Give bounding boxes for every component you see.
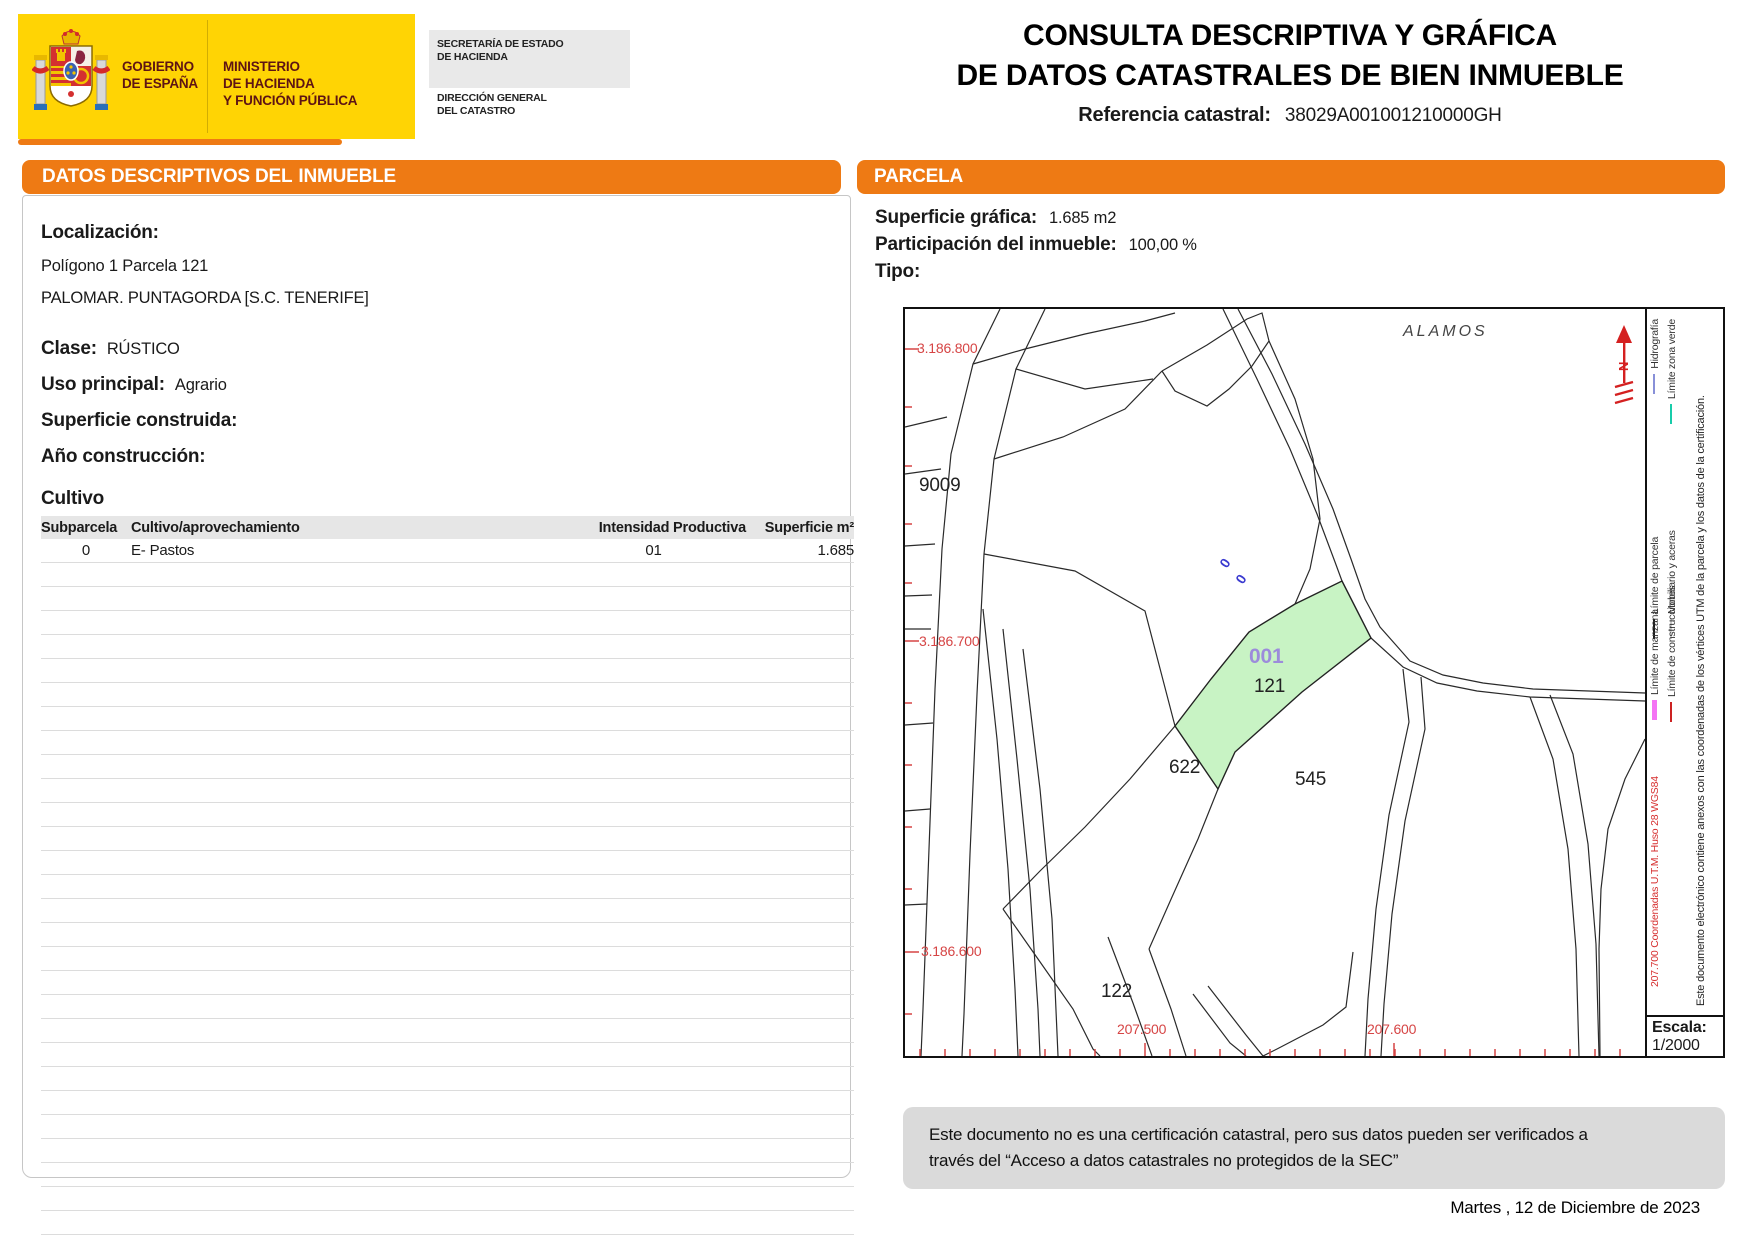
escala-box: Escala: 1/2000 bbox=[1645, 1015, 1723, 1056]
cultivo-cell bbox=[131, 1019, 561, 1043]
legend-item: Límite de manzana bbox=[1649, 609, 1661, 720]
cultivo-cell bbox=[561, 611, 746, 635]
cultivo-column-1: Subparcela bbox=[41, 516, 131, 539]
cultivo-cell bbox=[561, 1019, 746, 1043]
document-date: Martes , 12 de Diciembre de 2023 bbox=[1100, 1198, 1700, 1218]
cultivo-cell bbox=[561, 1067, 746, 1091]
cultivo-cell bbox=[746, 1067, 854, 1091]
cultivo-cell bbox=[561, 1211, 746, 1235]
cultivo-cell bbox=[746, 1163, 854, 1187]
cultivo-cell bbox=[41, 1187, 131, 1211]
section-header-emphasis: INMUEBLE bbox=[298, 166, 396, 187]
cultivo-cell bbox=[41, 1211, 131, 1235]
cultivo-empty-row bbox=[41, 635, 854, 659]
legend-item-label: Límite de manzana bbox=[1649, 609, 1661, 695]
disclaimer-box: Este documento no es una certificación c… bbox=[903, 1107, 1725, 1189]
datos-descriptivos-panel: Localización: Polígono 1 Parcela 121 PAL… bbox=[22, 195, 851, 1178]
cultivo-cell bbox=[131, 1139, 561, 1163]
cultivo-cell bbox=[746, 1211, 854, 1235]
cultivo-cell bbox=[131, 1067, 561, 1091]
cultivo-cell bbox=[746, 899, 854, 923]
cultivo-empty-row bbox=[41, 899, 854, 923]
section-header-prefix: DATOS DESCRIPTIVOS DEL bbox=[42, 166, 292, 187]
clase-label: Clase: bbox=[41, 338, 97, 359]
parcel-number-label: 121 bbox=[1254, 676, 1285, 698]
cultivo-cell bbox=[41, 827, 131, 851]
participacion-label: Participación del inmueble: bbox=[875, 234, 1117, 255]
gobierno-line2: DE ESPAÑA bbox=[122, 75, 198, 92]
cultivo-table: SubparcelaCultivo/aprovechamientoIntensi… bbox=[41, 516, 854, 1235]
cultivo-cell: 0 bbox=[41, 539, 131, 563]
cultivo-cell bbox=[41, 779, 131, 803]
referencia-value: 38029A001001210000GH bbox=[1285, 105, 1502, 126]
cultivo-cell bbox=[746, 1139, 854, 1163]
cultivo-cell bbox=[41, 563, 131, 587]
title-line1: CONSULTA DESCRIPTIVA Y GRÁFICA bbox=[870, 16, 1710, 56]
cultivo-cell bbox=[746, 1187, 854, 1211]
legend-separator bbox=[1645, 309, 1647, 1056]
cadastral-document-page: GOBIERNO DE ESPAÑA MINISTERIO DE HACIEND… bbox=[0, 0, 1757, 1241]
cultivo-cell bbox=[561, 755, 746, 779]
cultivo-cell bbox=[131, 1187, 561, 1211]
cultivo-cell bbox=[131, 1091, 561, 1115]
cultivo-cell bbox=[131, 1211, 561, 1235]
localizacion-line1: Polígono 1 Parcela 121 bbox=[41, 257, 842, 276]
localizacion-label: Localización: bbox=[41, 222, 842, 244]
cultivo-cell bbox=[131, 923, 561, 947]
gobierno-line1: GOBIERNO bbox=[122, 58, 198, 75]
ministerio-line3: Y FUNCIÓN PÚBLICA bbox=[223, 92, 357, 109]
cultivo-cell bbox=[746, 587, 854, 611]
legend-swatch-icon bbox=[1670, 404, 1672, 424]
orange-divider-stub bbox=[18, 139, 342, 145]
document-title: CONSULTA DESCRIPTIVA Y GRÁFICA DE DATOS … bbox=[870, 16, 1710, 127]
superficie-grafica-label: Superficie gráfica: bbox=[875, 207, 1037, 228]
cultivo-cell bbox=[131, 851, 561, 875]
cultivo-cell bbox=[41, 1139, 131, 1163]
legend-item: Límite zona verde bbox=[1666, 319, 1679, 424]
cultivo-cell bbox=[131, 611, 561, 635]
participacion-value: 100,00 % bbox=[1129, 236, 1197, 254]
cultivo-empty-row bbox=[41, 1211, 854, 1235]
cultivo-cell bbox=[131, 971, 561, 995]
cultivo-cell bbox=[746, 659, 854, 683]
cultivo-cell bbox=[746, 1091, 854, 1115]
ministerio-line1: MINISTERIO bbox=[223, 58, 357, 75]
cultivo-cell bbox=[131, 947, 561, 971]
gobierno-title: GOBIERNO DE ESPAÑA bbox=[122, 58, 198, 92]
north-label: N bbox=[1616, 362, 1631, 371]
cultivo-cell bbox=[41, 1019, 131, 1043]
disclaimer-line2: través del “Acceso a datos catastrales n… bbox=[929, 1148, 1699, 1174]
uso-principal-value: Agrario bbox=[175, 376, 227, 394]
cultivo-empty-row bbox=[41, 1187, 854, 1211]
clase-field: Clase:RÚSTICO bbox=[41, 338, 842, 360]
cultivo-cell bbox=[561, 1163, 746, 1187]
legend-line: Límite de construcciones bbox=[1666, 577, 1679, 722]
cultivo-empty-row bbox=[41, 659, 854, 683]
cultivo-cell bbox=[746, 995, 854, 1019]
cultivo-cell bbox=[41, 707, 131, 731]
utm-coordinate-label: 207.500 bbox=[1117, 1021, 1166, 1037]
cultivo-cell bbox=[561, 803, 746, 827]
uso-principal-label: Uso principal: bbox=[41, 374, 165, 395]
cultivo-cell: 01 bbox=[561, 539, 746, 563]
cultivo-cell bbox=[561, 683, 746, 707]
cultivo-cell bbox=[131, 779, 561, 803]
legend-item-label: Límite de construcciones bbox=[1666, 586, 1678, 697]
cultivo-cell bbox=[746, 563, 854, 587]
cultivo-cell bbox=[131, 1115, 561, 1139]
direccion-general-catastro: DIRECCIÓN GENERAL DEL CATASTRO bbox=[437, 92, 547, 118]
utm-left-ticks bbox=[905, 349, 919, 1014]
cultivo-cell bbox=[561, 563, 746, 587]
cultivo-cell bbox=[746, 851, 854, 875]
cultivo-empty-row bbox=[41, 1163, 854, 1187]
cultivo-cell bbox=[561, 635, 746, 659]
referencia-catastral: Referencia catastral:38029A001001210000G… bbox=[870, 104, 1710, 127]
cultivo-cell bbox=[746, 611, 854, 635]
cultivo-cell bbox=[561, 1091, 746, 1115]
cultivo-empty-row bbox=[41, 707, 854, 731]
cultivo-cell bbox=[41, 995, 131, 1019]
cultivo-cell bbox=[131, 587, 561, 611]
cultivo-empty-row bbox=[41, 1067, 854, 1091]
spain-coat-of-arms-icon bbox=[32, 22, 110, 132]
legend-swatch-icon bbox=[1670, 702, 1672, 722]
cultivo-empty-row bbox=[41, 1091, 854, 1115]
cultivo-cell bbox=[746, 731, 854, 755]
cultivo-cell bbox=[561, 731, 746, 755]
section-header-datos-descriptivos: DATOS DESCRIPTIVOS DELINMUEBLE bbox=[22, 160, 841, 194]
cultivo-cell bbox=[746, 803, 854, 827]
cultivo-empty-row bbox=[41, 947, 854, 971]
cultivo-cell bbox=[561, 659, 746, 683]
cultivo-empty-row bbox=[41, 1139, 854, 1163]
superficie-grafica-value: 1.685 m2 bbox=[1049, 209, 1116, 227]
cultivo-cell bbox=[41, 971, 131, 995]
legend-swatch-icon bbox=[1653, 374, 1655, 394]
cultivo-column-4: Superficie m² bbox=[746, 516, 854, 539]
cultivo-cell bbox=[746, 683, 854, 707]
cultivo-cell bbox=[561, 947, 746, 971]
cultivo-cell bbox=[561, 587, 746, 611]
direccion-line2: DEL CATASTRO bbox=[437, 105, 547, 118]
parcel-number-label: 622 bbox=[1169, 757, 1200, 779]
cultivo-cell bbox=[561, 851, 746, 875]
cultivo-cell bbox=[41, 875, 131, 899]
cultivo-cell bbox=[41, 1043, 131, 1067]
cultivo-cell bbox=[561, 779, 746, 803]
utm-coordinates-note: 207.700 Coordenadas U.T.M. Huso 28 WGS84 bbox=[1649, 776, 1662, 987]
cultivo-cell bbox=[41, 1115, 131, 1139]
cultivo-cell bbox=[41, 1163, 131, 1187]
north-arrow-icon: N bbox=[1615, 325, 1633, 403]
cultivo-table-header-row: SubparcelaCultivo/aprovechamientoIntensi… bbox=[41, 516, 854, 539]
cultivo-cell: E- Pastos bbox=[131, 539, 561, 563]
cultivo-cell bbox=[41, 659, 131, 683]
cultivo-empty-row bbox=[41, 731, 854, 755]
cultivo-cell bbox=[41, 1067, 131, 1091]
cultivo-cell bbox=[746, 779, 854, 803]
secretaria-line2: DE HACIENDA bbox=[437, 51, 630, 64]
cultivo-cell bbox=[41, 851, 131, 875]
localizacion-line2: PALOMAR. PUNTAGORDA [S.C. TENERIFE] bbox=[41, 289, 842, 308]
cultivo-cell bbox=[41, 923, 131, 947]
cultivo-cell bbox=[746, 947, 854, 971]
cultivo-cell bbox=[131, 635, 561, 659]
superficie-construida-label: Superficie construida: bbox=[41, 410, 237, 431]
cultivo-cell bbox=[561, 1043, 746, 1067]
superficie-construida-field: Superficie construida: bbox=[41, 410, 842, 432]
legend-line: Límite de manzana bbox=[1649, 600, 1662, 720]
cultivo-cell bbox=[131, 707, 561, 731]
cultivo-cell bbox=[746, 635, 854, 659]
cultivo-empty-row bbox=[41, 1115, 854, 1139]
parcel-number-label: 545 bbox=[1295, 769, 1326, 791]
cultivo-cell bbox=[746, 827, 854, 851]
utm-bottom-ticks bbox=[920, 1043, 1620, 1056]
gobierno-logo-block: GOBIERNO DE ESPAÑA MINISTERIO DE HACIEND… bbox=[18, 14, 415, 139]
cultivo-cell bbox=[131, 563, 561, 587]
cultivo-cell bbox=[746, 971, 854, 995]
cultivo-cell bbox=[746, 1115, 854, 1139]
cultivo-cell bbox=[41, 731, 131, 755]
cultivo-cell bbox=[746, 707, 854, 731]
cultivo-cell bbox=[41, 755, 131, 779]
parcel-subdivision-label: 001 bbox=[1249, 645, 1283, 669]
ministerio-line2: DE HACIENDA bbox=[223, 75, 357, 92]
place-name-label: ALAMOS bbox=[1403, 323, 1488, 341]
utm-coordinate-label: 3.186.800 bbox=[917, 340, 977, 356]
anio-construccion-label: Año construcción: bbox=[41, 446, 205, 467]
cultivo-data-row: 0E- Pastos011.685 bbox=[41, 539, 854, 563]
cultivo-cell bbox=[131, 1043, 561, 1067]
uso-principal-field: Uso principal:Agrario bbox=[41, 374, 842, 396]
escala-label: Escala: bbox=[1652, 1019, 1723, 1037]
escala-value: 1/2000 bbox=[1652, 1037, 1723, 1055]
cultivo-cell bbox=[746, 875, 854, 899]
cultivo-cell bbox=[131, 1163, 561, 1187]
participacion-field: Participación del inmueble:100,00 % bbox=[875, 234, 1197, 256]
cultivo-cell bbox=[131, 755, 561, 779]
cultivo-cell bbox=[561, 707, 746, 731]
cultivo-cell: 1.685 bbox=[746, 539, 854, 563]
cultivo-empty-row bbox=[41, 1043, 854, 1067]
ministerio-title: MINISTERIO DE HACIENDA Y FUNCIÓN PÚBLICA bbox=[223, 58, 357, 109]
cultivo-cell bbox=[561, 1187, 746, 1211]
cultivo-cell bbox=[41, 683, 131, 707]
legend-line: Límite de parcelaHidrografía bbox=[1649, 319, 1662, 639]
secretaria-line1: SECRETARÍA DE ESTADO bbox=[437, 38, 630, 51]
cultivo-empty-row bbox=[41, 971, 854, 995]
secretaria-box: SECRETARÍA DE ESTADO DE HACIENDA bbox=[429, 30, 630, 88]
cultivo-cell bbox=[746, 1043, 854, 1067]
cultivo-cell bbox=[41, 899, 131, 923]
cultivo-empty-row bbox=[41, 755, 854, 779]
disclaimer-line1: Este documento no es una certificación c… bbox=[929, 1122, 1699, 1148]
cultivo-empty-row bbox=[41, 683, 854, 707]
clase-value: RÚSTICO bbox=[107, 340, 180, 358]
cultivo-cell bbox=[561, 827, 746, 851]
legend-item-label: Límite zona verde bbox=[1666, 319, 1678, 399]
superficie-grafica-field: Superficie gráfica:1.685 m2 bbox=[875, 207, 1116, 229]
legend-item: Límite de construcciones bbox=[1666, 586, 1678, 722]
cultivo-empty-row bbox=[41, 803, 854, 827]
cultivo-empty-row bbox=[41, 611, 854, 635]
cultivo-empty-row bbox=[41, 995, 854, 1019]
utm-coordinate-label: 3.186.600 bbox=[921, 943, 981, 959]
cultivo-empty-row bbox=[41, 851, 854, 875]
title-line2: DE DATOS CATASTRALES DE BIEN INMUEBLE bbox=[870, 56, 1710, 96]
cultivo-empty-row bbox=[41, 875, 854, 899]
cultivo-column-2: Cultivo/aprovechamiento bbox=[131, 516, 561, 539]
cultivo-empty-row bbox=[41, 779, 854, 803]
cultivo-cell bbox=[131, 731, 561, 755]
cultivo-cell bbox=[131, 995, 561, 1019]
cultivo-empty-row bbox=[41, 1019, 854, 1043]
cultivo-cell bbox=[131, 899, 561, 923]
logo-divider bbox=[207, 20, 208, 133]
section-header-parcela: PARCELA bbox=[857, 160, 1725, 194]
cultivo-cell bbox=[746, 1019, 854, 1043]
cultivo-cell bbox=[131, 803, 561, 827]
cultivo-cell bbox=[41, 947, 131, 971]
parcel-number-label: 9009 bbox=[919, 475, 960, 497]
cultivo-cell bbox=[561, 899, 746, 923]
legend-item-label: Hidrografía bbox=[1649, 319, 1661, 369]
cultivo-cell bbox=[561, 875, 746, 899]
referencia-label: Referencia catastral: bbox=[1078, 104, 1271, 126]
cultivo-cell bbox=[41, 635, 131, 659]
tipo-label: Tipo: bbox=[875, 261, 920, 282]
anio-construccion-field: Año construcción: bbox=[41, 446, 842, 468]
cultivo-title: Cultivo bbox=[41, 488, 842, 510]
cultivo-empty-row bbox=[41, 923, 854, 947]
cultivo-cell bbox=[41, 803, 131, 827]
parcel-number-label: 122 bbox=[1101, 981, 1132, 1003]
cultivo-cell bbox=[131, 659, 561, 683]
cultivo-cell bbox=[41, 1091, 131, 1115]
cultivo-cell bbox=[561, 1139, 746, 1163]
cadastral-map[interactable]: N ALAMOS9009001121622545122003.186.8003.… bbox=[903, 307, 1725, 1058]
cultivo-cell bbox=[131, 827, 561, 851]
cultivo-cell bbox=[41, 587, 131, 611]
utm-coordinate-label: 207.600 bbox=[1367, 1021, 1416, 1037]
cultivo-cell bbox=[746, 923, 854, 947]
cultivo-cell bbox=[561, 923, 746, 947]
cultivo-cell bbox=[41, 611, 131, 635]
cultivo-cell bbox=[131, 875, 561, 899]
cultivo-empty-row bbox=[41, 827, 854, 851]
certification-note: Este documento electrónico contiene anex… bbox=[1695, 395, 1708, 1006]
utm-coordinate-label: 3.186.700 bbox=[919, 633, 979, 649]
cultivo-empty-row bbox=[41, 563, 854, 587]
cultivo-cell bbox=[561, 1115, 746, 1139]
direccion-line1: DIRECCIÓN GENERAL bbox=[437, 92, 547, 105]
cultivo-cell bbox=[561, 971, 746, 995]
cultivo-cell bbox=[561, 995, 746, 1019]
tipo-field: Tipo: bbox=[875, 261, 932, 283]
cultivo-empty-row bbox=[41, 587, 854, 611]
cultivo-cell bbox=[131, 683, 561, 707]
legend-item: Hidrografía bbox=[1649, 319, 1662, 394]
legend-swatch-icon bbox=[1652, 700, 1657, 720]
cultivo-column-3: Intensidad Productiva bbox=[561, 516, 746, 539]
cultivo-cell bbox=[746, 755, 854, 779]
